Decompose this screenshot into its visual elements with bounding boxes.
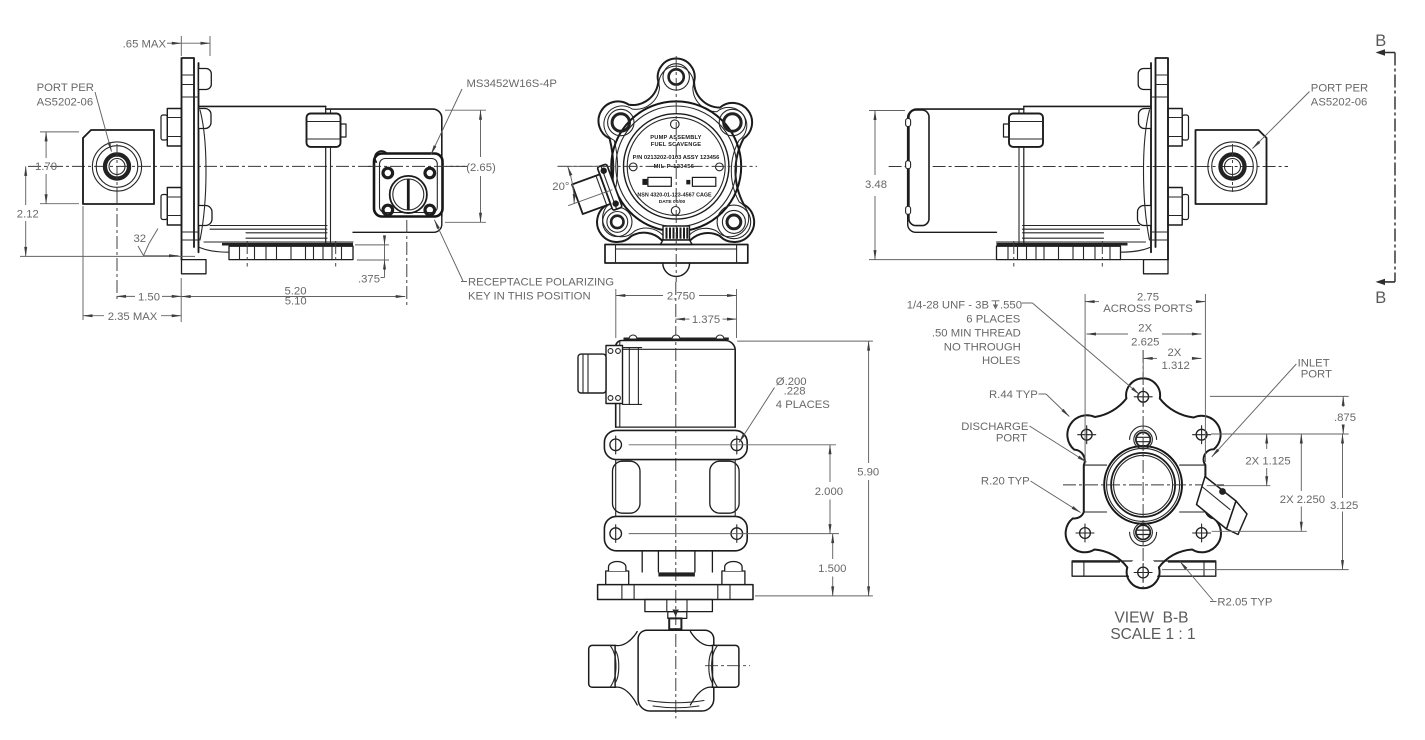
svg-text:2.750: 2.750	[667, 291, 695, 303]
svg-text:VIEW B-B: VIEW B-B	[1114, 610, 1188, 627]
svg-text:2X 1.125: 2X 1.125	[1245, 455, 1290, 467]
svg-text:DISCHARGE: DISCHARGE	[961, 421, 1029, 433]
svg-text:AS5202-06: AS5202-06	[1311, 97, 1368, 109]
svg-text:AS5202-06: AS5202-06	[37, 97, 94, 109]
svg-text:1.500: 1.500	[818, 563, 846, 575]
svg-text:20°: 20°	[552, 181, 569, 193]
svg-text:PORT PER: PORT PER	[1311, 83, 1368, 95]
svg-text:B: B	[1375, 289, 1386, 307]
svg-text:2X 2.250: 2X 2.250	[1280, 494, 1325, 506]
svg-text:(2.65): (2.65)	[466, 162, 496, 174]
svg-text:1.70: 1.70	[35, 161, 57, 173]
svg-text:2.12: 2.12	[17, 209, 39, 221]
svg-text:R.20 TYP: R.20 TYP	[981, 476, 1030, 488]
svg-text:1/4-28 UNF - 3B: 1/4-28 UNF - 3B	[907, 300, 989, 312]
svg-text:NSN 4320-01-123-4567 CAGE: NSN 4320-01-123-4567 CAGE	[637, 193, 712, 199]
svg-text:2.35 MAX: 2.35 MAX	[108, 311, 158, 323]
svg-text:KEY IN THIS POSITION: KEY IN THIS POSITION	[468, 291, 591, 303]
svg-text:.550: .550	[1000, 300, 1022, 312]
svg-text:2X: 2X	[1138, 323, 1152, 335]
svg-text:NO THROUGH: NO THROUGH	[944, 342, 1021, 354]
svg-text:2.75: 2.75	[1137, 291, 1159, 303]
svg-text:HOLES: HOLES	[982, 355, 1021, 367]
svg-text:2.000: 2.000	[815, 486, 843, 498]
svg-text:MS3452W16S-4P: MS3452W16S-4P	[467, 78, 557, 90]
svg-text:PORT: PORT	[996, 432, 1027, 444]
svg-text:PORT: PORT	[1301, 369, 1332, 381]
svg-text:3.48: 3.48	[865, 179, 887, 191]
svg-text:.228: .228	[784, 385, 806, 397]
svg-text:1.50: 1.50	[138, 291, 160, 303]
svg-text:4 PLACES: 4 PLACES	[776, 399, 830, 411]
svg-text:.375: .375	[358, 274, 380, 286]
svg-text:PORT PER: PORT PER	[37, 82, 94, 94]
svg-text:1.312: 1.312	[1162, 360, 1190, 372]
svg-text:ACROSS PORTS: ACROSS PORTS	[1103, 303, 1193, 315]
svg-text:6 PLACES: 6 PLACES	[966, 314, 1020, 326]
svg-text:DATE 00/00: DATE 00/00	[659, 199, 686, 205]
svg-text:2X: 2X	[1167, 347, 1181, 359]
svg-text:B: B	[1375, 32, 1386, 50]
svg-text:5.90: 5.90	[857, 467, 879, 479]
svg-text:MIL-P-123456: MIL-P-123456	[654, 164, 695, 170]
svg-text:5.10: 5.10	[285, 296, 307, 308]
svg-text:.65 MAX: .65 MAX	[123, 39, 167, 51]
svg-text:R.44 TYP: R.44 TYP	[989, 389, 1038, 401]
svg-text:RECEPTACLE POLARIZING: RECEPTACLE POLARIZING	[468, 277, 614, 289]
svg-text:R2.05 TYP: R2.05 TYP	[1217, 597, 1272, 609]
svg-text:3.125: 3.125	[1330, 500, 1358, 512]
svg-text:.50 MIN THREAD: .50 MIN THREAD	[932, 328, 1021, 340]
svg-text:2.625: 2.625	[1131, 337, 1159, 349]
svg-text:.875: .875	[1334, 412, 1356, 424]
svg-text:SCALE 1 : 1: SCALE 1 : 1	[1110, 626, 1195, 643]
svg-text:32: 32	[134, 233, 147, 245]
svg-text:1.375: 1.375	[692, 314, 720, 326]
